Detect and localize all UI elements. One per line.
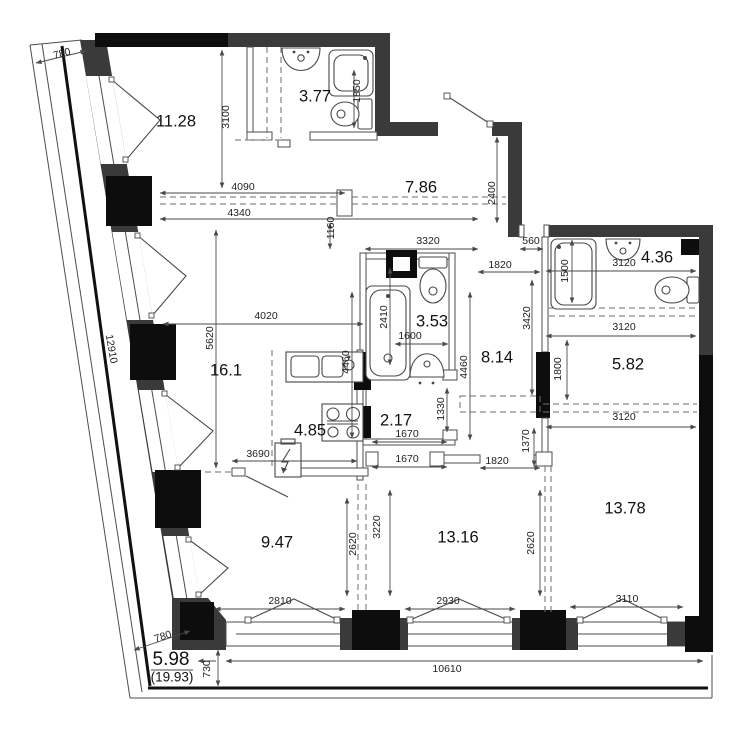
dimension-label: 1160 <box>325 217 337 240</box>
room-area-label: 13.16 <box>437 528 478 546</box>
dimension-label: 780 <box>153 628 174 645</box>
dimension-label: 1600 <box>398 330 422 342</box>
dimension-label: 1670 <box>395 428 419 440</box>
washbasin-icon <box>282 48 320 71</box>
dimension-label: 3100 <box>220 105 232 129</box>
door-jamb <box>430 452 444 466</box>
toilet-icon <box>655 277 699 303</box>
dimension-label: 3320 <box>416 235 440 247</box>
dimension-label: 3220 <box>371 515 383 539</box>
dimension-label: 1820 <box>485 455 509 467</box>
column <box>536 352 550 418</box>
room-area-label: 3.77 <box>299 87 331 105</box>
room-area-label: 2.17 <box>380 411 412 429</box>
dimension-label: 10610 <box>432 663 461 675</box>
entry-door <box>444 93 493 127</box>
dimension-label: 560 <box>522 235 540 247</box>
dimension-label: 3420 <box>521 306 533 330</box>
room-area-label: 3.53 <box>416 312 448 330</box>
dimension-label: 2620 <box>347 532 359 556</box>
dimension-label: 1330 <box>435 397 447 421</box>
room-area-label: 9.47 <box>261 533 293 551</box>
column <box>130 324 176 380</box>
room-area-label: 8.14 <box>481 348 513 366</box>
room-area-label: 13.78 <box>604 499 645 517</box>
electrical-panel-icon <box>275 439 301 477</box>
column <box>155 470 201 528</box>
dimension-label: 4020 <box>254 310 278 322</box>
dimension-label: 2620 <box>525 531 537 555</box>
door-jamb <box>536 452 552 466</box>
room-area-label: 5.82 <box>612 355 644 373</box>
dimension-label: 1370 <box>520 429 532 453</box>
bathtub-icon <box>551 239 596 309</box>
stove-icon <box>322 404 363 441</box>
door-jamb <box>544 225 549 237</box>
room-area-label: 4.85 <box>294 421 326 439</box>
dimension-label: 2410 <box>378 305 390 329</box>
dimension-label: 730 <box>201 660 213 678</box>
dimension-label: 1670 <box>395 453 419 465</box>
room-area-label: 11.28 <box>156 112 196 130</box>
room-area-label: 16.1 <box>210 361 242 379</box>
dimension-label: 3110 <box>616 593 639 605</box>
dimension-label: 2930 <box>436 595 460 607</box>
dimension-label: 5620 <box>204 326 216 350</box>
door-jamb <box>443 430 457 440</box>
dimension-label: 3120 <box>612 321 636 333</box>
dimension-label: 1820 <box>488 259 512 271</box>
column <box>106 176 152 226</box>
dimension-label: 2810 <box>268 595 292 607</box>
dimension-label: 4460 <box>458 355 470 379</box>
dimension-label: 3690 <box>246 448 270 460</box>
dimension-label: 4340 <box>227 207 251 219</box>
room-area-label: 4.36 <box>641 248 673 266</box>
door-jamb <box>443 370 457 380</box>
area-summary-main: 5.98 <box>153 649 190 670</box>
dimension-label: 4460 <box>340 350 352 374</box>
door-jamb <box>366 452 378 466</box>
dimension-label: 2400 <box>486 181 498 205</box>
column <box>352 610 400 650</box>
door-jamb <box>278 140 290 147</box>
dimension-label: 1850 <box>351 79 363 103</box>
wardrobe-outline <box>460 396 540 412</box>
floor-plan-drawing: 11.283.777.864.363.538.145.8216.14.852.1… <box>0 0 750 735</box>
dimension-label: 1500 <box>559 259 571 283</box>
floor-plan-canvas: 11.283.777.864.363.538.145.8216.14.852.1… <box>0 0 750 735</box>
washbasin-icon <box>410 354 444 385</box>
toilet-icon <box>419 257 447 303</box>
dimension-label: 1800 <box>552 357 564 381</box>
area-summary-total: (19.93) <box>151 670 194 685</box>
dimension-label: 3120 <box>612 257 636 269</box>
dimension-label: 780 <box>52 46 72 62</box>
dimension-label: 3120 <box>612 411 636 423</box>
column <box>520 610 566 650</box>
room-area-label: 7.86 <box>405 178 437 196</box>
dimension-label: 4090 <box>231 181 255 193</box>
